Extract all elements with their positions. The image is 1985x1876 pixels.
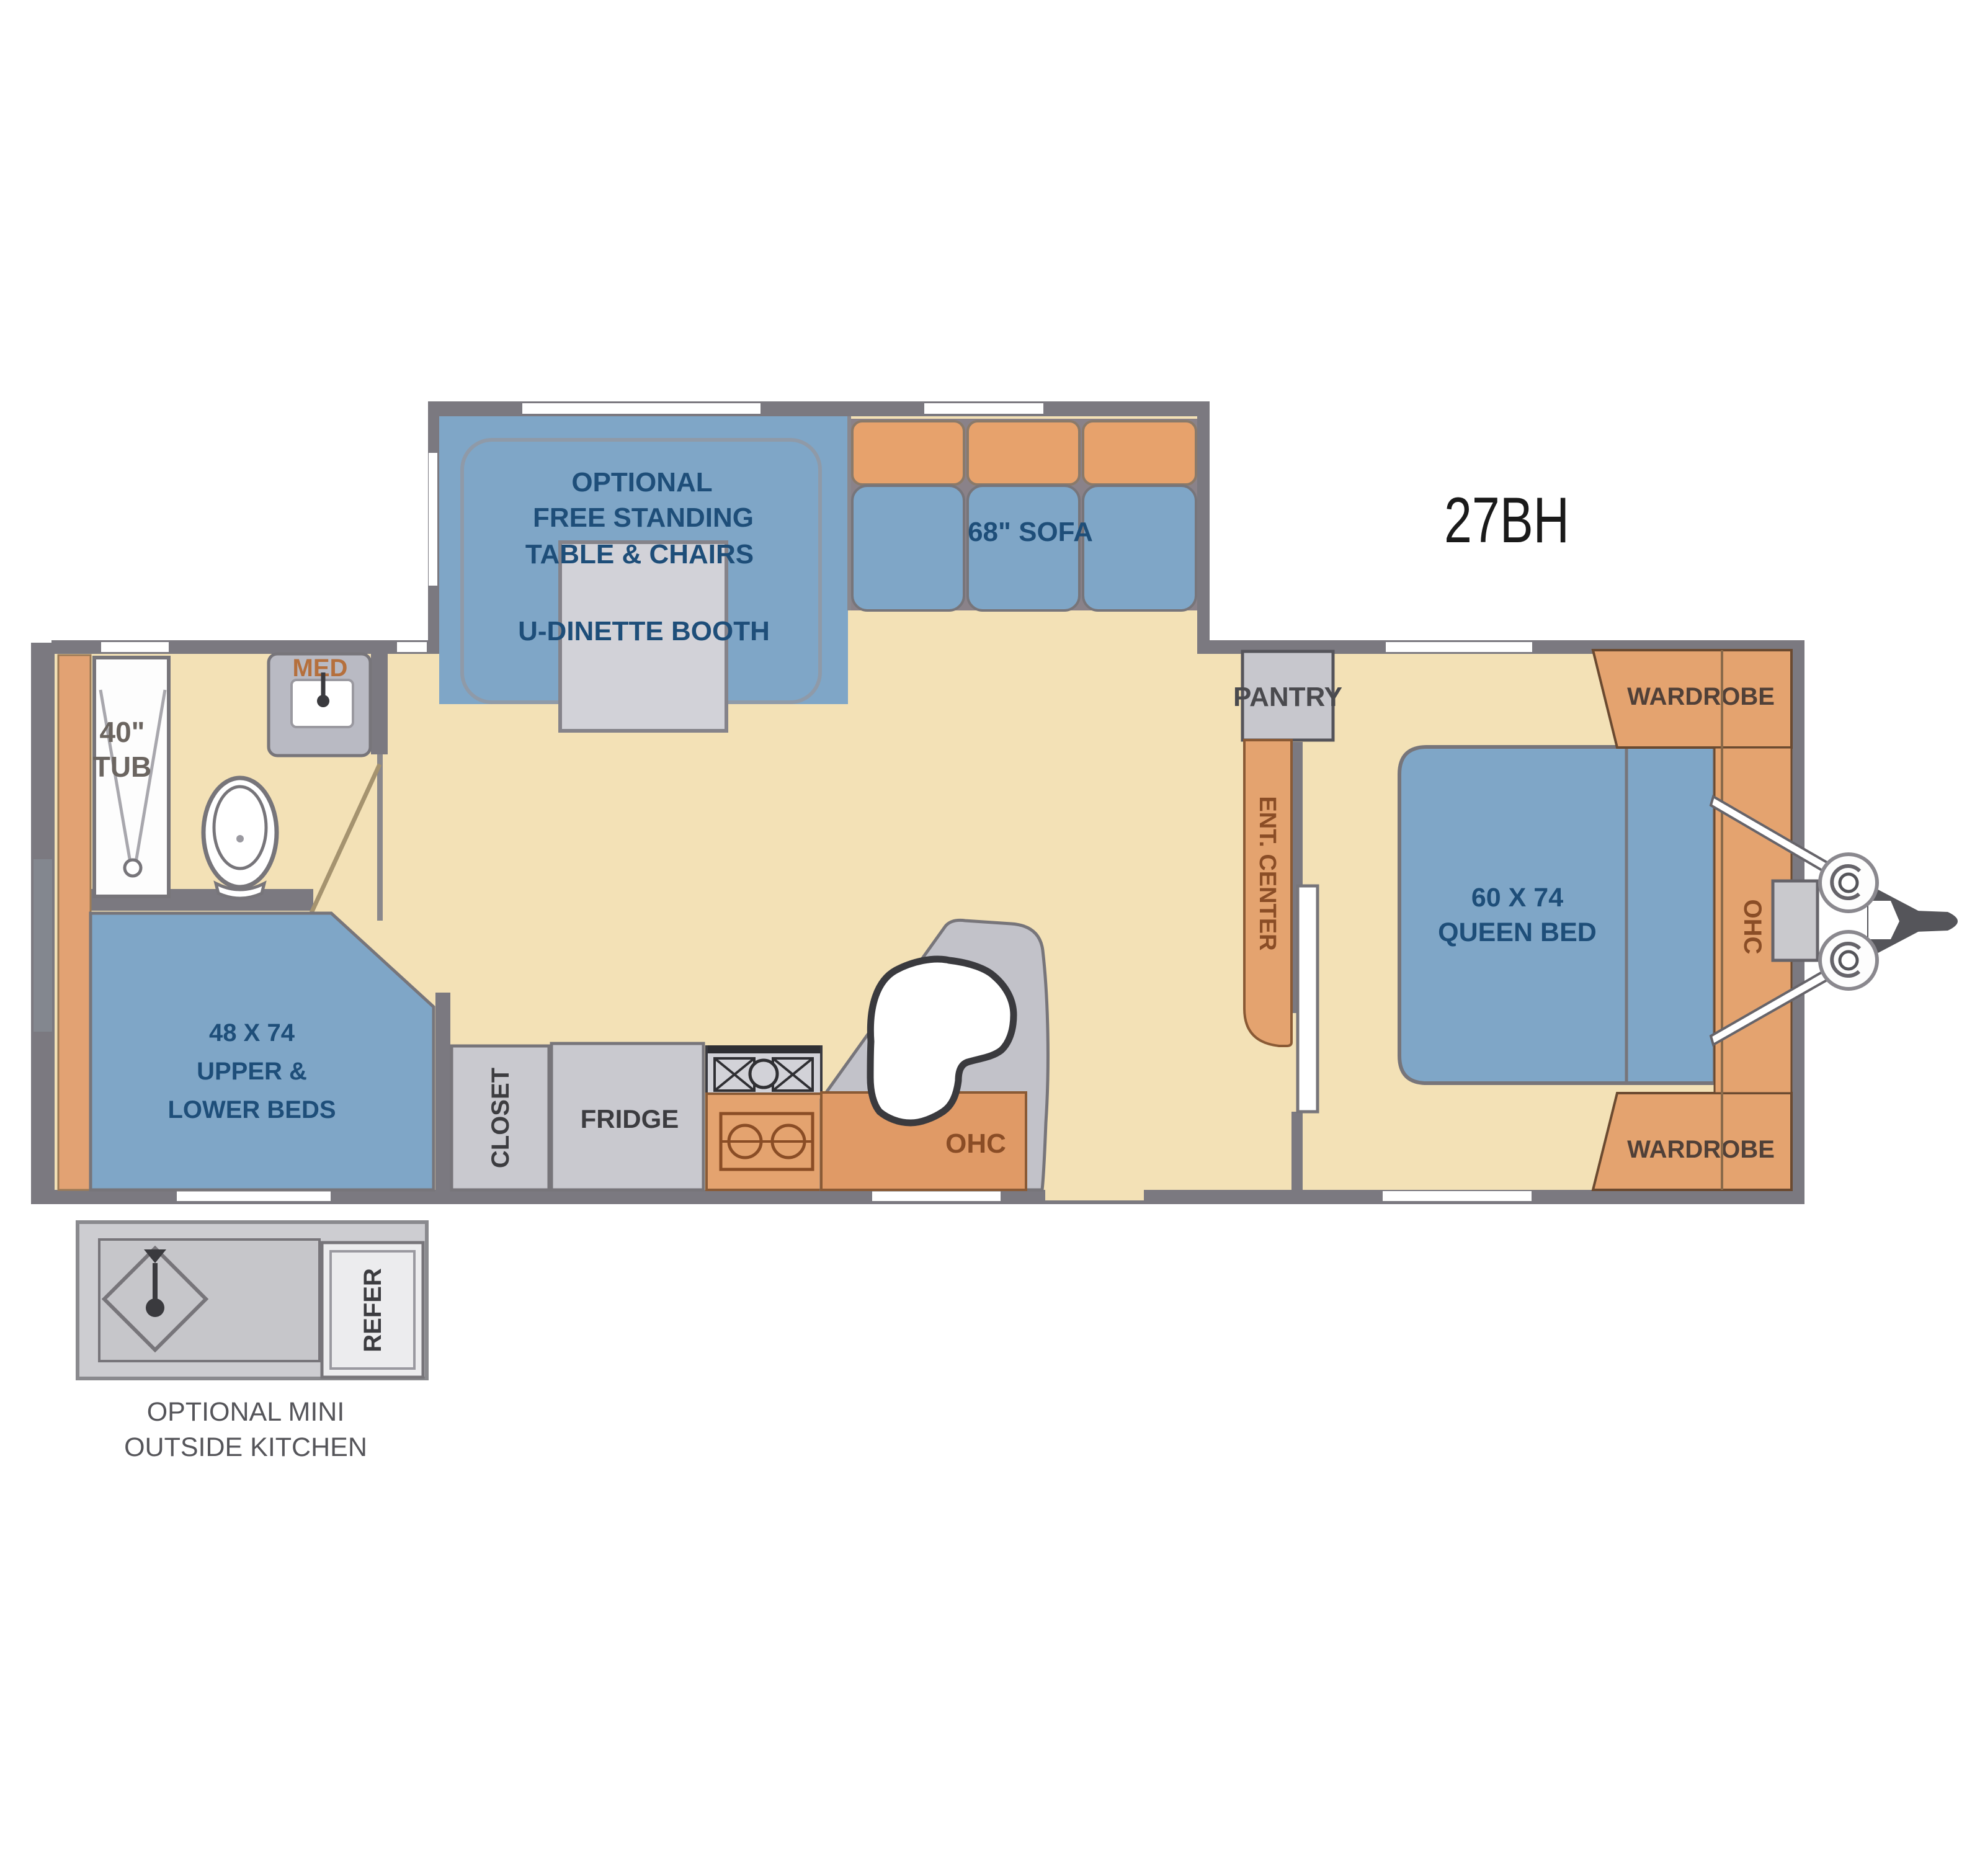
svg-text:48 X 74: 48 X 74 [209,1019,295,1047]
svg-text:PANTRY: PANTRY [1233,682,1342,712]
svg-text:OUTSIDE KITCHEN: OUTSIDE KITCHEN [124,1432,367,1462]
svg-text:WARDROBE: WARDROBE [1627,1136,1775,1163]
svg-text:ENT. CENTER: ENT. CENTER [1254,796,1280,950]
svg-text:UPPER &: UPPER & [197,1058,307,1085]
svg-text:U-DINETTE BOOTH: U-DINETTE BOOTH [518,616,770,646]
svg-text:CLOSET: CLOSET [487,1068,514,1168]
svg-text:40": 40" [100,716,145,748]
svg-text:OPTIONAL: OPTIONAL [571,467,712,498]
svg-text:27BH: 27BH [1444,485,1569,556]
svg-text:QUEEN BED: QUEEN BED [1438,918,1597,947]
svg-text:TABLE & CHAIRS: TABLE & CHAIRS [525,539,754,569]
svg-text:68" SOFA: 68" SOFA [968,517,1093,547]
svg-text:FREE STANDING: FREE STANDING [533,502,754,533]
svg-text:60 X 74: 60 X 74 [1471,883,1563,913]
svg-text:MED: MED [293,654,348,682]
svg-text:TUB: TUB [93,751,152,783]
svg-text:FRIDGE: FRIDGE [581,1104,679,1133]
svg-text:OHC: OHC [1739,900,1766,955]
svg-text:OHC: OHC [945,1128,1006,1159]
svg-text:LOWER BEDS: LOWER BEDS [167,1096,336,1123]
svg-text:REFER: REFER [359,1268,386,1352]
svg-text:OPTIONAL MINI: OPTIONAL MINI [147,1397,345,1427]
svg-text:WARDROBE: WARDROBE [1627,683,1775,710]
